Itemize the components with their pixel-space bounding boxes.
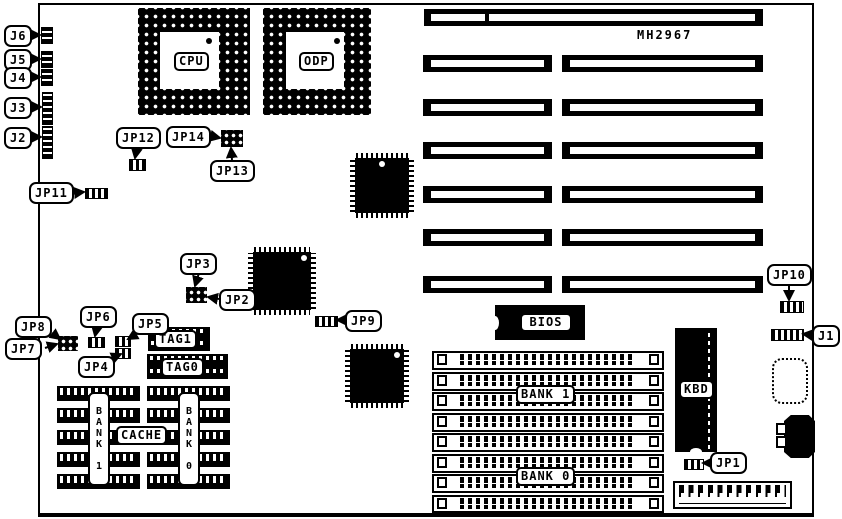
isa-slot-7-right (562, 276, 763, 293)
jumper-label-jp5: JP5 (132, 313, 169, 335)
j5-jumper-block (41, 51, 53, 68)
jp11-jumper-block (85, 188, 108, 199)
jp10-jumper-block (780, 301, 804, 313)
simm-socket-5 (432, 433, 664, 452)
motherboard-diagram: MH2967 CPU ODP BIOS KBD (0, 0, 842, 519)
jumper-label-jp13: JP13 (210, 160, 255, 182)
qfp-chip-2 (248, 247, 316, 315)
jumper-label-jp9: JP9 (345, 310, 382, 332)
jumper-label-j2: J2 (4, 127, 32, 149)
isa-slot-4-left (423, 142, 552, 159)
j6-jumper-block (41, 27, 53, 44)
jumper-label-jp8: JP8 (15, 316, 52, 338)
jp7-jp8-jumper-block (58, 336, 78, 351)
keyboard-din-connector (784, 415, 815, 458)
din-tab-2 (776, 436, 787, 448)
jumper-label-jp14: JP14 (166, 126, 211, 148)
isa-slot-6-left (423, 229, 552, 246)
jumper-label-jp3: JP3 (180, 253, 217, 275)
qfp-chip-3 (345, 344, 409, 408)
jumper-label-jp2: JP2 (219, 289, 256, 311)
jumper-label-jp10: JP10 (767, 264, 812, 286)
jumper-label-j6: J6 (4, 25, 32, 47)
jp5-jumper-block (115, 336, 131, 347)
crystal-outline (772, 358, 808, 404)
bios-label: BIOS (520, 313, 572, 332)
j3-jumper-block (42, 92, 53, 125)
jp4-jumper-block (115, 348, 131, 359)
jp6-jumper-block (88, 337, 105, 348)
kbd-label: KBD (679, 380, 714, 399)
j4-jumper-block (41, 69, 53, 86)
isa-slot-7-left (423, 276, 552, 293)
jumper-label-j1: J1 (812, 325, 840, 347)
isa-slot-3-right (562, 99, 763, 116)
din-tab-1 (776, 423, 787, 435)
bios-chip-notch (491, 316, 499, 330)
bank0-label: BANK 0 (516, 467, 575, 486)
isa-slot-3-left (423, 99, 552, 116)
jumper-label-jp11: JP11 (29, 182, 74, 204)
cache-bank1-vertical-label: BANK 1 (88, 392, 110, 486)
jumper-label-jp12: JP12 (116, 127, 161, 149)
jumper-label-j3: J3 (4, 97, 32, 119)
odp-label: ODP (299, 52, 334, 71)
simm-socket-1 (432, 351, 664, 370)
jp9-jumper-block (315, 316, 338, 327)
simm-socket-4 (432, 413, 664, 432)
cache-label: CACHE (116, 426, 167, 445)
isa-slot-5-right (562, 186, 763, 203)
isa-slot-4-right (562, 142, 763, 159)
isa-slot-1 (424, 9, 763, 26)
jumper-label-jp7: JP7 (5, 338, 42, 360)
jumper-label-jp6: JP6 (80, 306, 117, 328)
tag0-label: TAG0 (161, 358, 204, 377)
jumper-label-jp1: JP1 (710, 452, 747, 474)
bank1-label: BANK 1 (516, 385, 575, 404)
jp1-jumper-block (684, 459, 704, 470)
jp2-jp3-jumper-block (186, 287, 207, 303)
isa-slot-2-left (423, 55, 552, 72)
simm-socket-8 (432, 495, 664, 513)
qfp-chip-1 (350, 153, 414, 218)
jp12-jumper-block (129, 159, 146, 171)
j1-jumper-block (771, 329, 804, 341)
isa-slot-6-right (562, 229, 763, 246)
isa-slot-2-right (562, 55, 763, 72)
isa-slot-5-left (423, 186, 552, 203)
cpu-label: CPU (174, 52, 209, 71)
cache-bank0-vertical-label: BANK 0 (178, 392, 200, 486)
kbd-chip-notch (690, 448, 702, 456)
jp13-jp14-jumper-block (221, 130, 243, 147)
power-connector (673, 481, 792, 509)
model-number: MH2967 (637, 28, 692, 42)
j2-jumper-block (42, 126, 53, 159)
jumper-label-jp4: JP4 (78, 356, 115, 378)
jumper-label-j4: J4 (4, 67, 32, 89)
